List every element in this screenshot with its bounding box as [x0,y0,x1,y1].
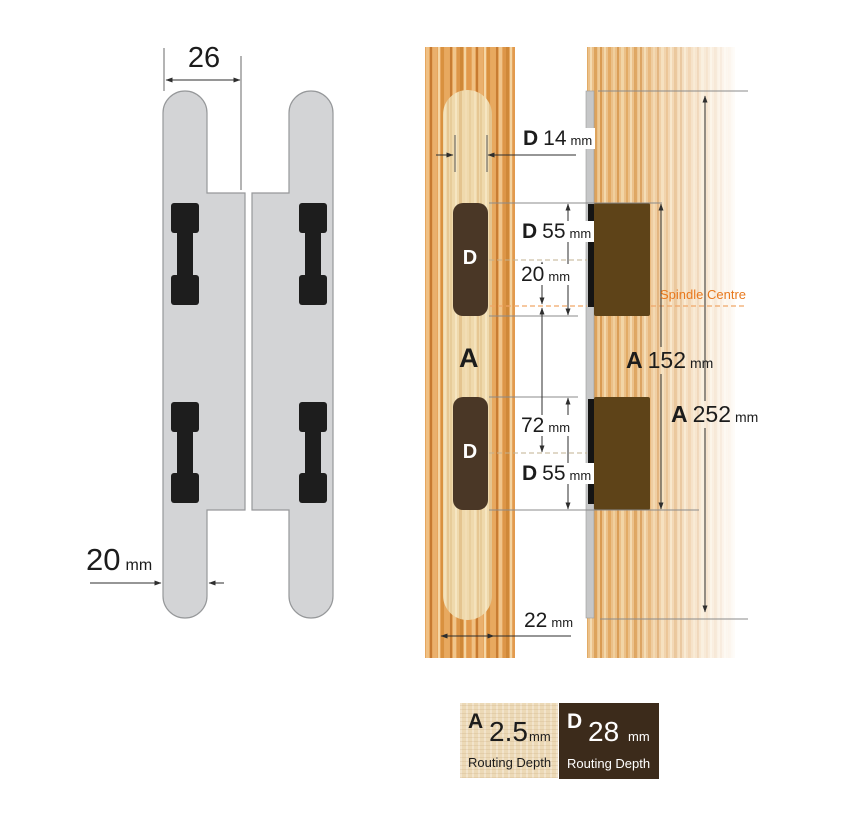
left-hinge-diagram [90,48,333,618]
legend-d-letter: D [567,710,582,734]
legend-a-letter: A [468,710,483,734]
legend-routing-depth-a: A 2.5 mm Routing Depth [460,703,558,778]
pocket-d-top-label: D [461,248,479,268]
legend-a-value: 2.5 [489,716,528,748]
dim-label-26: 26 [184,44,224,73]
dim-label-72mm: 72mm [518,415,573,436]
dim-label-20mm-spindle: 20mm [518,264,573,285]
dim-label-20mm-left: 20mm [86,544,152,575]
frame-routing-label-a: A [459,345,479,372]
legend-a-unit: mm [529,729,551,744]
legend-d-value: 28 [588,716,619,748]
door-block-d-bottom [594,397,650,510]
door-block-d-top [594,203,650,316]
legend-routing-depth-d: D 28 mm Routing Depth [559,703,659,779]
hinge-leaf-left [163,91,245,618]
dim-label-a152: A152mm [626,349,713,372]
legend-d-unit: mm [628,729,650,744]
spindle-centre-label: Spindle Centre [660,288,746,301]
hinge-edge-clip-top [588,204,594,307]
dim-label-22mm: 22mm [524,610,573,631]
dim-label-a252: A252mm [671,403,758,426]
dim-label-d55-top: D55mm [519,221,594,242]
legend-a-caption: Routing Depth [468,755,551,770]
hinge-edge-strip [586,91,594,618]
hinge-edge-clip-bottom [588,399,594,504]
hinge-routing-diagram: 26 20mm D14mm D55mm 20mm Spindle Centre … [0,0,859,828]
pocket-d-bottom-label: D [461,442,479,462]
legend-d-caption: Routing Depth [567,756,650,771]
hinge-leaf-right [252,91,333,618]
dim-label-d14: D14mm [520,128,595,149]
dim-label-d55-bottom: D55mm [519,463,594,484]
